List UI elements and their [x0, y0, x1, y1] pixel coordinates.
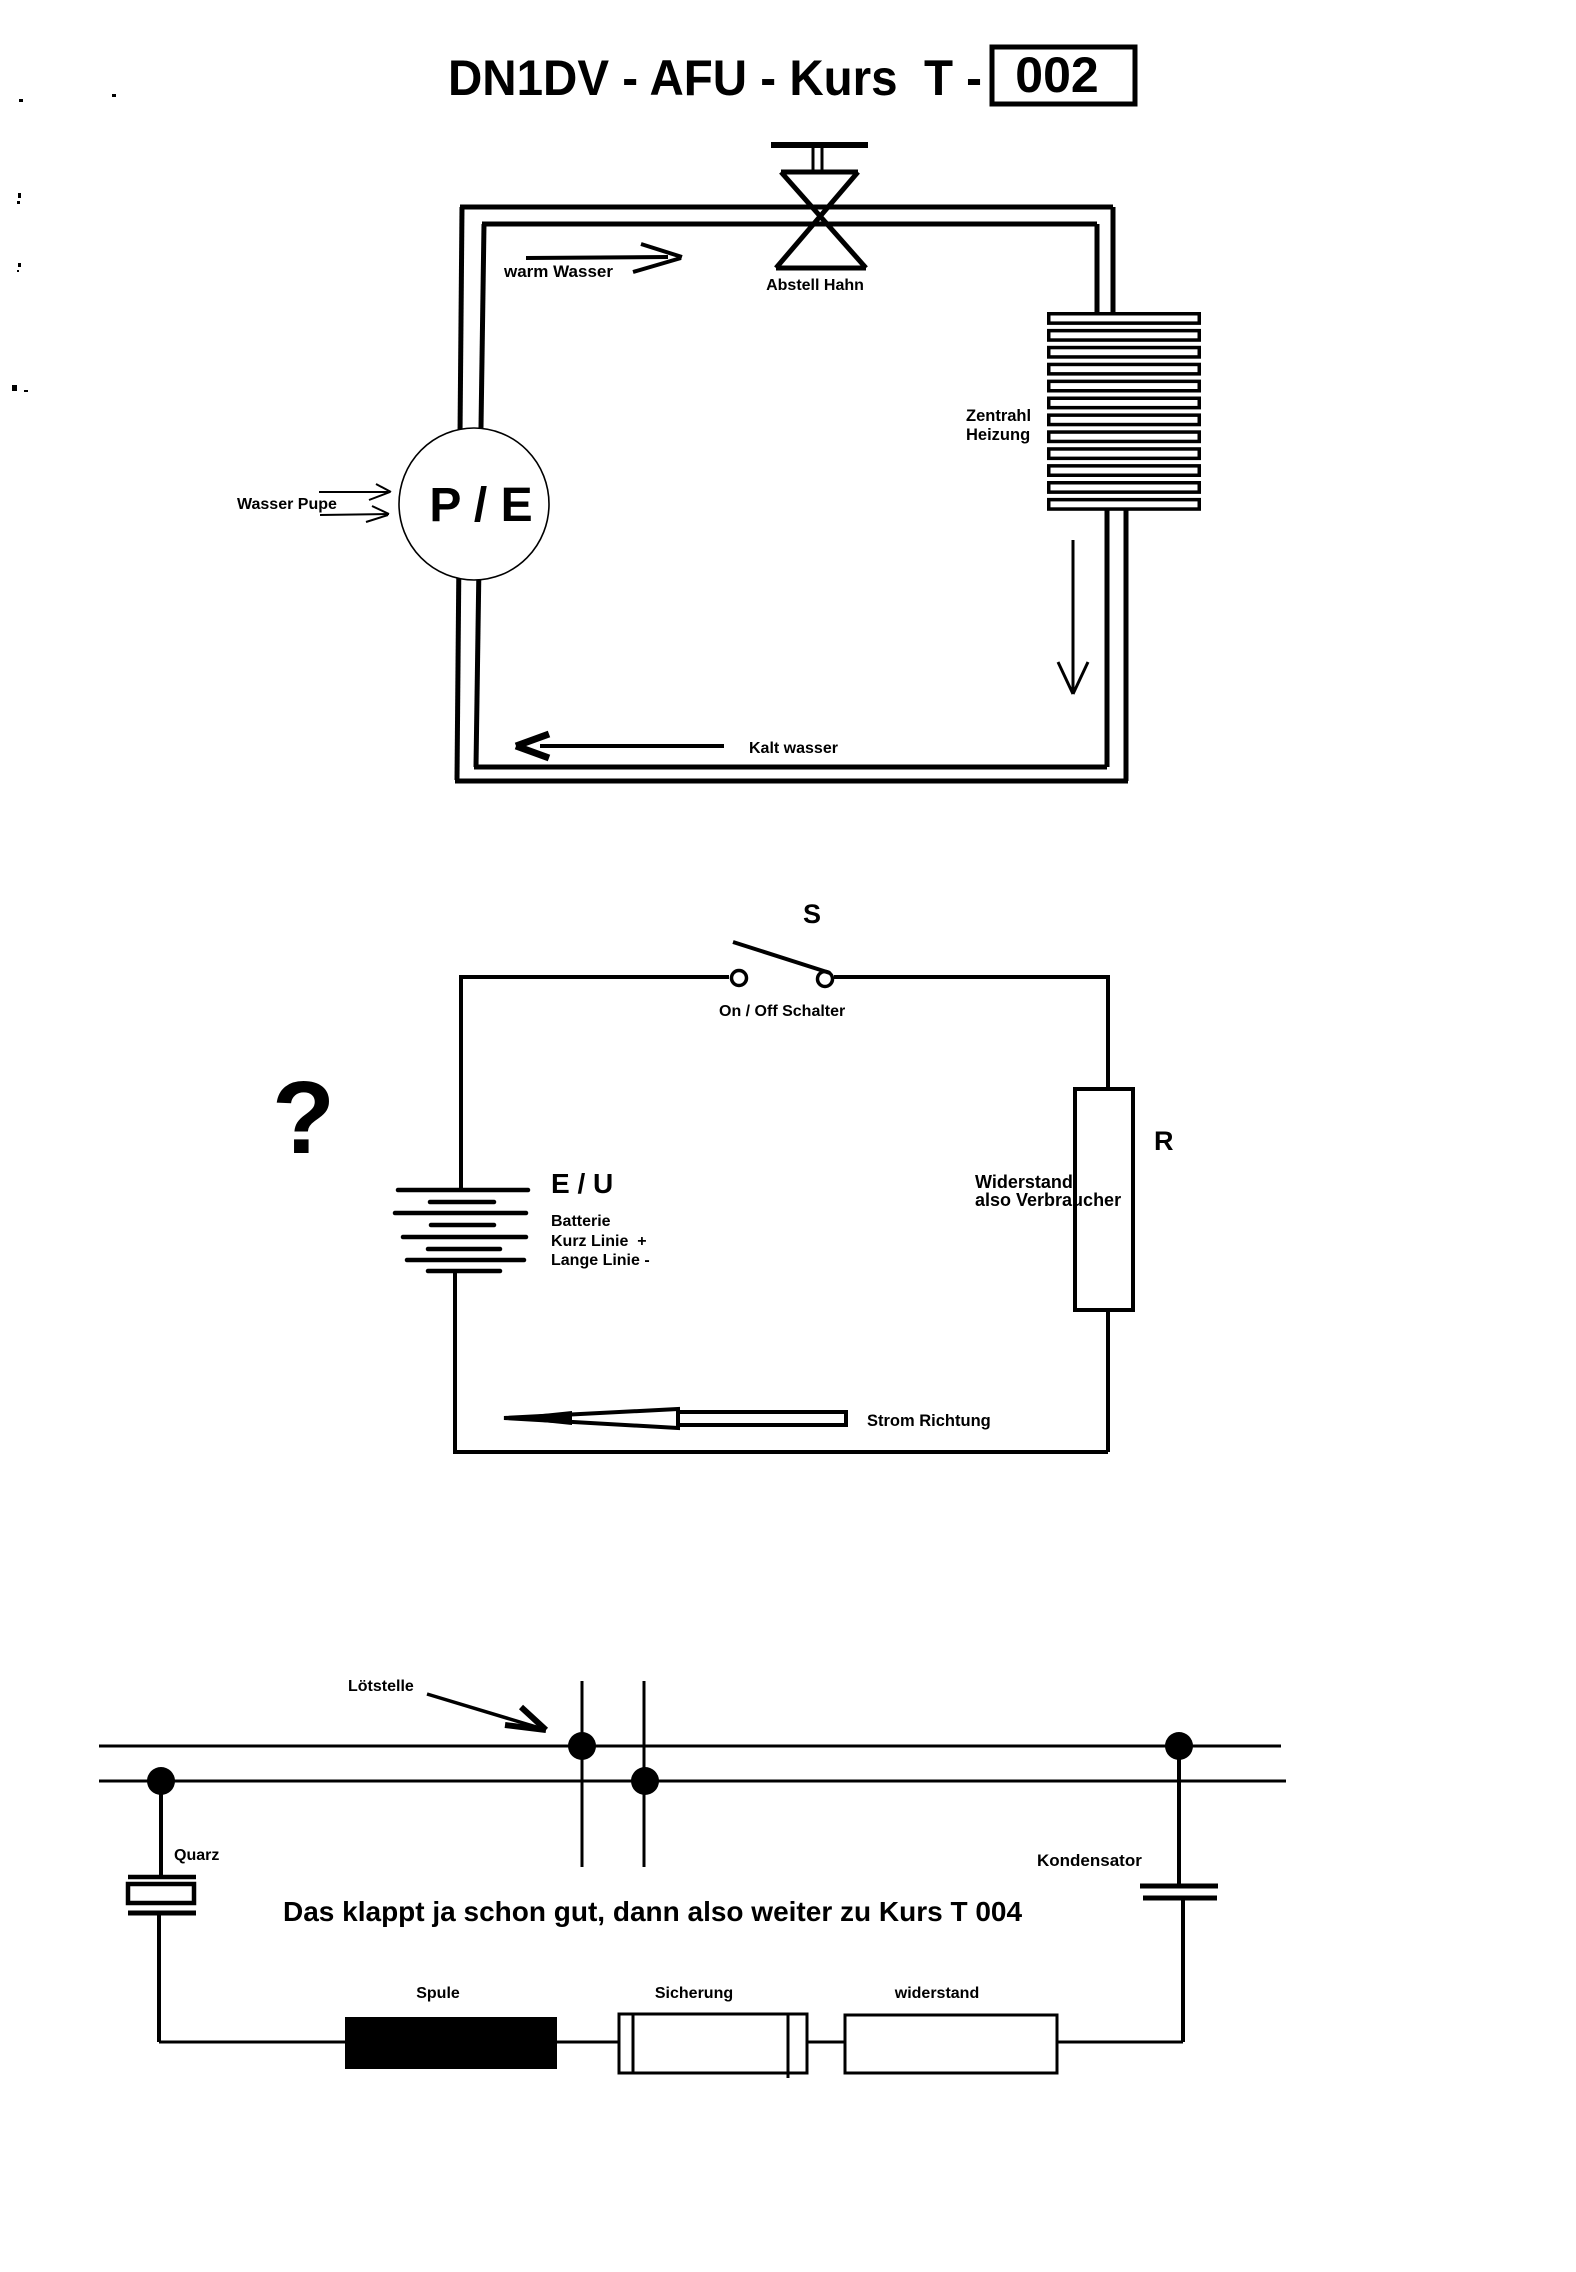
svg-text:Lötstelle: Lötstelle [348, 1678, 414, 1695]
svg-text:widerstand: widerstand [894, 1985, 979, 2002]
svg-text:On / Off Schalter: On / Off Schalter [719, 1003, 845, 1020]
svg-text:Strom Richtung: Strom Richtung [867, 1412, 991, 1430]
svg-text:Das klappt ja schon gut, dann: Das klappt ja schon gut, dann also weite… [283, 1896, 1022, 1927]
svg-text:Quarz: Quarz [174, 1847, 219, 1864]
svg-text:Kurz Linie +: Kurz Linie + [551, 1233, 647, 1250]
svg-text:Wasser Pupe: Wasser Pupe [237, 496, 337, 513]
svg-text:DN1DV - AFU - Kurs T -: DN1DV - AFU - Kurs T - [448, 50, 982, 106]
svg-text:Kalt wasser: Kalt wasser [749, 740, 838, 757]
svg-text:E / U: E / U [551, 1168, 613, 1199]
svg-text:002: 002 [1015, 47, 1098, 103]
svg-text:Widerstand: Widerstand [975, 1172, 1073, 1192]
svg-text:Kondensator: Kondensator [1037, 1851, 1142, 1870]
svg-text:P / E: P / E [429, 479, 532, 532]
svg-text:Spule: Spule [416, 1985, 460, 2002]
svg-text:Sicherung: Sicherung [655, 1985, 733, 2002]
svg-text:Batterie: Batterie [551, 1213, 611, 1230]
svg-text:S: S [803, 899, 821, 929]
svg-text:warm Wasser: warm Wasser [503, 262, 613, 281]
svg-text:also Verbraucher: also Verbraucher [975, 1190, 1121, 1210]
svg-text:R: R [1154, 1126, 1174, 1156]
svg-text:?: ? [272, 1060, 335, 1175]
svg-text:Heizung: Heizung [966, 426, 1030, 444]
svg-text:Abstell Hahn: Abstell Hahn [766, 277, 864, 294]
svg-text:Zentrahl: Zentrahl [966, 407, 1031, 425]
svg-text:Lange Linie -: Lange Linie - [551, 1252, 650, 1269]
